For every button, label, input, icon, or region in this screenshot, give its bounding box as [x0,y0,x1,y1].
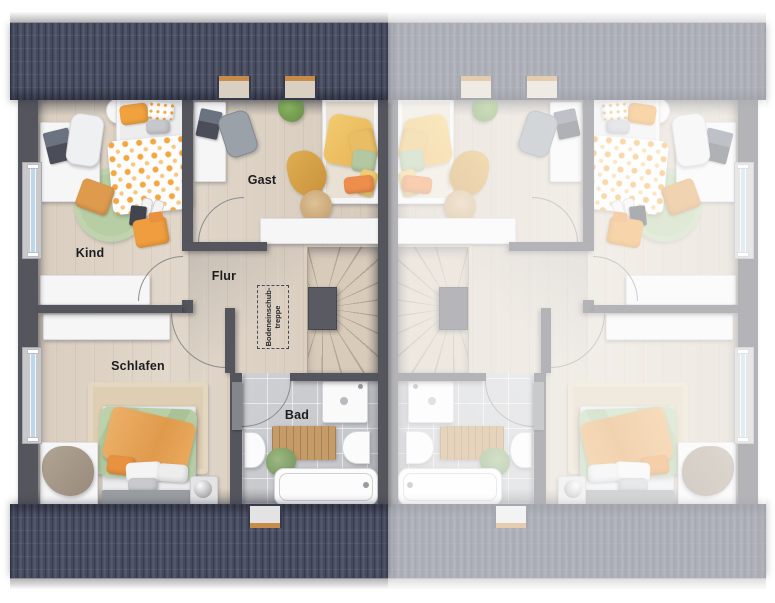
roof-window-sill [250,523,280,528]
bathtub-inner-rim [279,473,373,501]
window-sill-mirror [737,164,749,169]
schlafen-lamp-sphere [194,480,212,498]
roof-top-tiles [10,22,388,100]
bad-door-leaf [232,382,242,430]
bad-toilet [342,431,370,464]
kind-wardrobe [40,275,150,305]
attic-ladder-hatch: Bodeneinschub- treppe [257,285,289,349]
window-schlafen [22,347,42,444]
floorplan-page: Bodeneinschub- treppe [0,0,775,603]
window-sill [27,164,39,169]
roof-bottom-mirror [388,504,766,588]
roof-window-bad-mirror [494,504,528,528]
roof-window-gast-1 [217,76,251,100]
roof-window-gast-2-mirror [459,76,493,100]
room-label-flur: Flur [212,270,236,284]
bad-shower-drain-mirror [428,397,436,405]
window-glass [30,351,36,440]
room-label-schlafen: Schlafen [111,360,165,374]
kind-wardrobe-mirror [626,275,736,305]
bad-shower-drain [340,397,348,405]
roof-top [10,12,388,100]
schlafen-lamp-sphere-mirror [564,480,582,498]
roof-window-sill-mirror [527,76,557,81]
unit-right: Bodeneinschub- treppe [388,12,766,588]
bathtub-faucet-mirror [407,482,413,488]
bad-door-leaf-mirror [534,382,544,430]
gast-sideboard-mirror [396,218,516,244]
roof-bottom-tiles [10,504,388,578]
attic-label-line2: treppe [273,287,282,347]
wall-kind-gast-mirror [583,100,594,242]
bad-bathtub-mirror [398,468,502,506]
window-sill-mirror [737,437,749,442]
party-wall-mirror [388,100,398,504]
roof-bottom [10,504,388,588]
roof-window-gast-2 [283,76,317,100]
roof-window-gast-1-mirror [525,76,559,100]
window-glass-mirror [740,351,746,440]
roof-window-sill [219,76,249,81]
kind-gift-box-orange [148,211,163,223]
attic-label-line1: Bodeneinschub- [264,287,273,347]
bad-shower-faucet [358,384,363,389]
window-sill [27,437,39,442]
window-kind [22,162,42,259]
bad-shower-faucet-mirror [413,384,418,389]
kind-pillow-dotted [147,101,174,121]
wall-bad-top-mirror [398,373,486,381]
room-label-bad: Bad [285,409,309,423]
gutter-bottom [10,578,388,589]
bathtub-faucet [363,482,369,488]
gutter-top [10,12,388,23]
roof-window-bad [248,504,282,528]
kind-gift-box-orange-mirror [612,211,627,223]
wall-gast-bottom-mirror [509,242,594,251]
gutter-bottom-mirror [388,578,766,589]
kind-desk-chair-mirror [671,112,712,168]
roof-bottom-tiles-mirror [388,504,766,578]
window-glass [30,166,36,255]
kind-desk-chair [65,112,106,168]
schlafen-wardrobe-mirror [606,314,733,340]
kind-pillow-orange-mirror [627,102,658,126]
roof-top-tiles-mirror [388,22,766,100]
wall-schlafen-flur-mirror [541,308,551,373]
window-schlafen-mirror [734,347,754,444]
bathtub-inner-rim-mirror [403,473,497,501]
wall-kind-gast [182,100,193,242]
schlafen-wardrobe [43,314,170,340]
gast-pillow-orange-mirror [401,174,433,194]
schlafen-pillow-white-2 [157,463,188,483]
stair-newel-post [308,287,337,330]
unit-left: Bodeneinschub- treppe [10,12,388,588]
bad-bathtub [274,468,378,506]
kind-pillow-gray [146,119,171,134]
kind-pillow-gray-mirror [606,119,631,134]
window-sill-mirror [737,349,749,354]
window-kind-mirror [734,162,754,259]
stair-newel-post-mirror [439,287,468,330]
wall-kind-bottom [38,305,182,313]
window-sill [27,349,39,354]
roof-top-mirror [388,12,766,100]
wall-gast-bottom [182,242,267,251]
party-wall [378,100,388,504]
gutter-top-mirror [388,12,766,23]
kind-pillow-dotted-mirror [601,101,628,121]
wall-bad-top [290,373,378,381]
window-glass-mirror [740,166,746,255]
roof-window-sill-mirror [461,76,491,81]
gast-sideboard [260,218,380,244]
window-sill-mirror [737,252,749,257]
window-sill [27,252,39,257]
schlafen-pillow-white-2-mirror [587,463,618,483]
kind-pillow-orange [119,102,150,126]
gast-pillow-orange [343,174,375,194]
roof-window-sill [285,76,315,81]
bad-washbasin-mirror [510,432,532,468]
wall-kind-bottom-mirror [594,305,738,313]
room-label-gast: Gast [248,174,277,188]
wall-kind-door-stub-mirror [583,300,594,313]
attic-ladder-label: Bodeneinschub- treppe [264,287,282,347]
wall-kind-door-stub [182,300,193,313]
roof-window-sill-mirror [496,523,526,528]
wall-schlafen-flur [225,308,235,373]
room-label-kind: Kind [76,247,105,261]
